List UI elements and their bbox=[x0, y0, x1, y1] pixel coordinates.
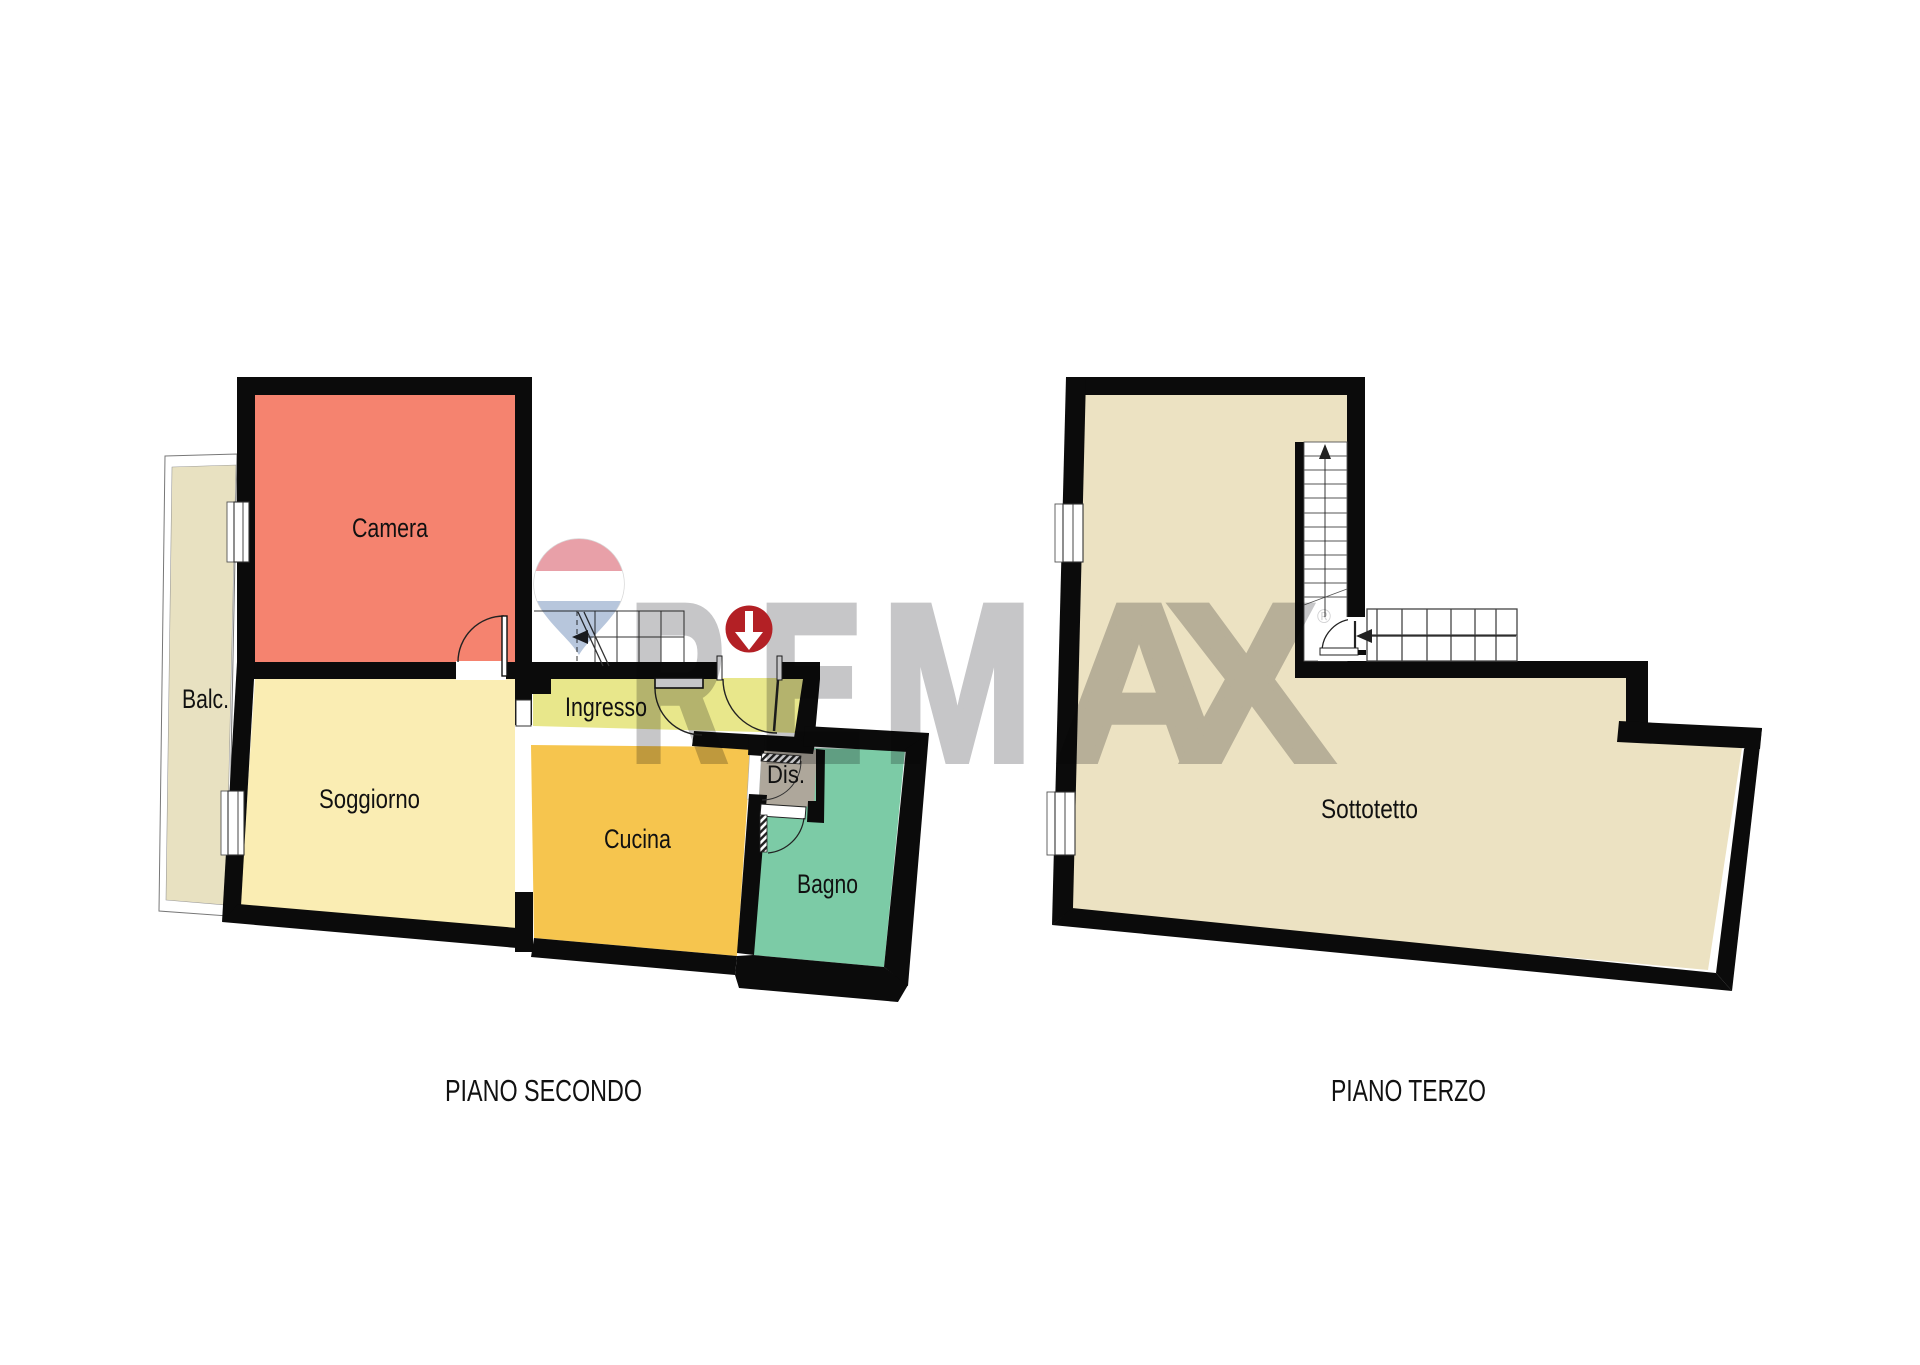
svg-text:PIANO SECONDO: PIANO SECONDO bbox=[445, 1073, 642, 1108]
svg-text:X: X bbox=[1162, 560, 1337, 808]
svg-text:R: R bbox=[630, 559, 727, 808]
svg-text:Soggiorno: Soggiorno bbox=[319, 784, 420, 814]
svg-text:M: M bbox=[882, 559, 1032, 808]
svg-text:Bagno: Bagno bbox=[797, 869, 858, 899]
svg-text:PIANO TERZO: PIANO TERZO bbox=[1331, 1073, 1486, 1108]
svg-text:E: E bbox=[759, 558, 863, 807]
svg-text:Camera: Camera bbox=[352, 513, 429, 543]
svg-text:Cucina: Cucina bbox=[604, 824, 672, 854]
svg-text:®: ® bbox=[1317, 607, 1331, 628]
svg-text:Balc.: Balc. bbox=[182, 684, 229, 714]
